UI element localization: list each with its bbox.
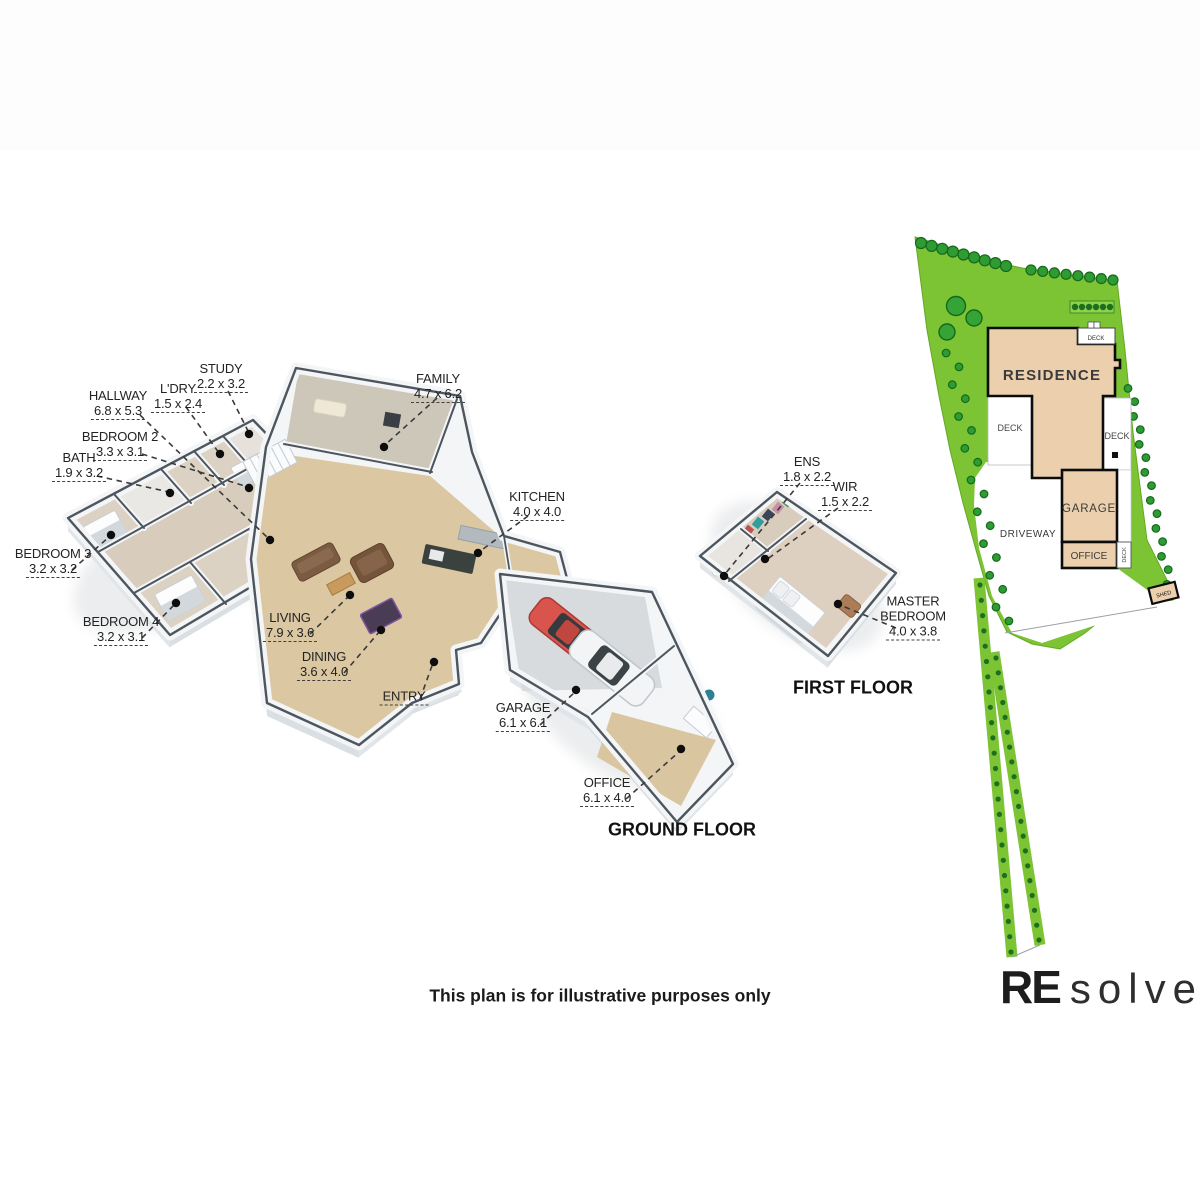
deck-right-label: DECK — [1104, 431, 1129, 441]
room-dims: 1.9 x 3.2 — [52, 465, 106, 482]
room-label-wir: WIR 1.5 x 2.2 — [818, 479, 872, 511]
room-name: ENS — [780, 454, 834, 469]
room-dims: 4.0 x 3.8 — [886, 624, 940, 641]
room-label-hallway: HALLWAY 6.8 x 5.3 — [89, 388, 147, 420]
room-label-ldry: L'DRY 1.5 x 2.4 — [151, 381, 205, 413]
room-name: DINING — [297, 649, 351, 664]
ground-floor-title: GROUND FLOOR — [608, 820, 756, 841]
room-dims: 6.1 x 4.0 — [580, 790, 634, 807]
room-name: ENTRY — [380, 689, 429, 706]
room-name: BEDROOM 2 — [82, 429, 158, 444]
deck-steps — [1088, 322, 1094, 328]
room-name: STUDY — [194, 361, 248, 376]
room-label-garage: GARAGE 6.1 x 6.1 — [496, 700, 550, 732]
room-dims: 3.2 x 3.1 — [94, 629, 148, 646]
room-label-living: LIVING 7.9 x 3.6 — [263, 610, 317, 642]
room-name: LIVING — [263, 610, 317, 625]
room-name: WIR — [818, 479, 872, 494]
room-label-bedroom4: BEDROOM 4 3.2 x 3.1 — [83, 614, 159, 646]
room-dims: 4.7 x 6.2 — [411, 386, 465, 403]
room-dims: 1.5 x 2.2 — [818, 494, 872, 511]
logo-re: RE — [1000, 960, 1060, 1014]
room-label-office: OFFICE 6.1 x 4.0 — [580, 775, 634, 807]
disclaimer-text: This plan is for illustrative purposes o… — [429, 986, 770, 1007]
room-name: BEDROOM 3 — [15, 546, 91, 561]
site-plan: SHED RESIDENCE DECK DECK DECK GARAGE OFF… — [915, 237, 1179, 957]
room-dims: 6.8 x 5.3 — [91, 403, 145, 420]
room-label-bath: BATH 1.9 x 3.2 — [52, 450, 106, 482]
garage-site-label: GARAGE — [1062, 503, 1116, 515]
room-name: KITCHEN — [509, 489, 565, 504]
room-dims: 3.6 x 4.0 — [297, 664, 351, 681]
office-site-label: OFFICE — [1071, 551, 1108, 562]
room-dims: 7.9 x 3.6 — [263, 625, 317, 642]
first-floor-plan — [683, 471, 910, 681]
driveway-label: DRIVEWAY — [1000, 529, 1056, 540]
room-name: MASTER BEDROOM — [872, 594, 954, 624]
room-name: OFFICE — [580, 775, 634, 790]
fireplace — [383, 412, 401, 429]
room-name: HALLWAY — [89, 388, 147, 403]
room-name: L'DRY — [151, 381, 205, 396]
room-dims: 6.1 x 6.1 — [496, 715, 550, 732]
room-label-family: FAMILY 4.7 x 6.2 — [411, 371, 465, 403]
plan-graphics: SHED RESIDENCE DECK DECK DECK GARAGE OFF… — [0, 0, 1200, 1200]
room-name: BATH — [52, 450, 106, 465]
room-label-dining: DINING 3.6 x 4.0 — [297, 649, 351, 681]
room-name: FAMILY — [411, 371, 465, 386]
room-name: GARAGE — [496, 700, 550, 715]
deck-office-label: DECK — [1122, 547, 1128, 563]
room-dims: 1.5 x 2.4 — [151, 396, 205, 413]
room-label-master-bedroom: MASTER BEDROOM 4.0 x 3.8 — [872, 594, 954, 641]
first-floor-title: FIRST FLOOR — [793, 678, 913, 699]
spa-square — [1112, 452, 1118, 458]
room-name: BEDROOM 4 — [83, 614, 159, 629]
room-label-entry: ENTRY — [380, 689, 429, 706]
deck-top-label: DECK — [1088, 336, 1105, 342]
residence-label: RESIDENCE — [1003, 367, 1101, 384]
logo-solve: solve — [1070, 965, 1200, 1013]
deck-left-label: DECK — [997, 423, 1022, 433]
deck-steps2 — [1094, 322, 1100, 328]
room-dims: 3.2 x 3.2 — [26, 561, 80, 578]
room-label-bedroom3: BEDROOM 3 3.2 x 3.2 — [15, 546, 91, 578]
floorplan-page: SHED RESIDENCE DECK DECK DECK GARAGE OFF… — [0, 0, 1200, 1200]
room-dims: 4.0 x 4.0 — [510, 504, 564, 521]
resolve-logo: RE solve — [1000, 960, 1200, 1014]
room-label-kitchen: KITCHEN 4.0 x 4.0 — [509, 489, 565, 521]
